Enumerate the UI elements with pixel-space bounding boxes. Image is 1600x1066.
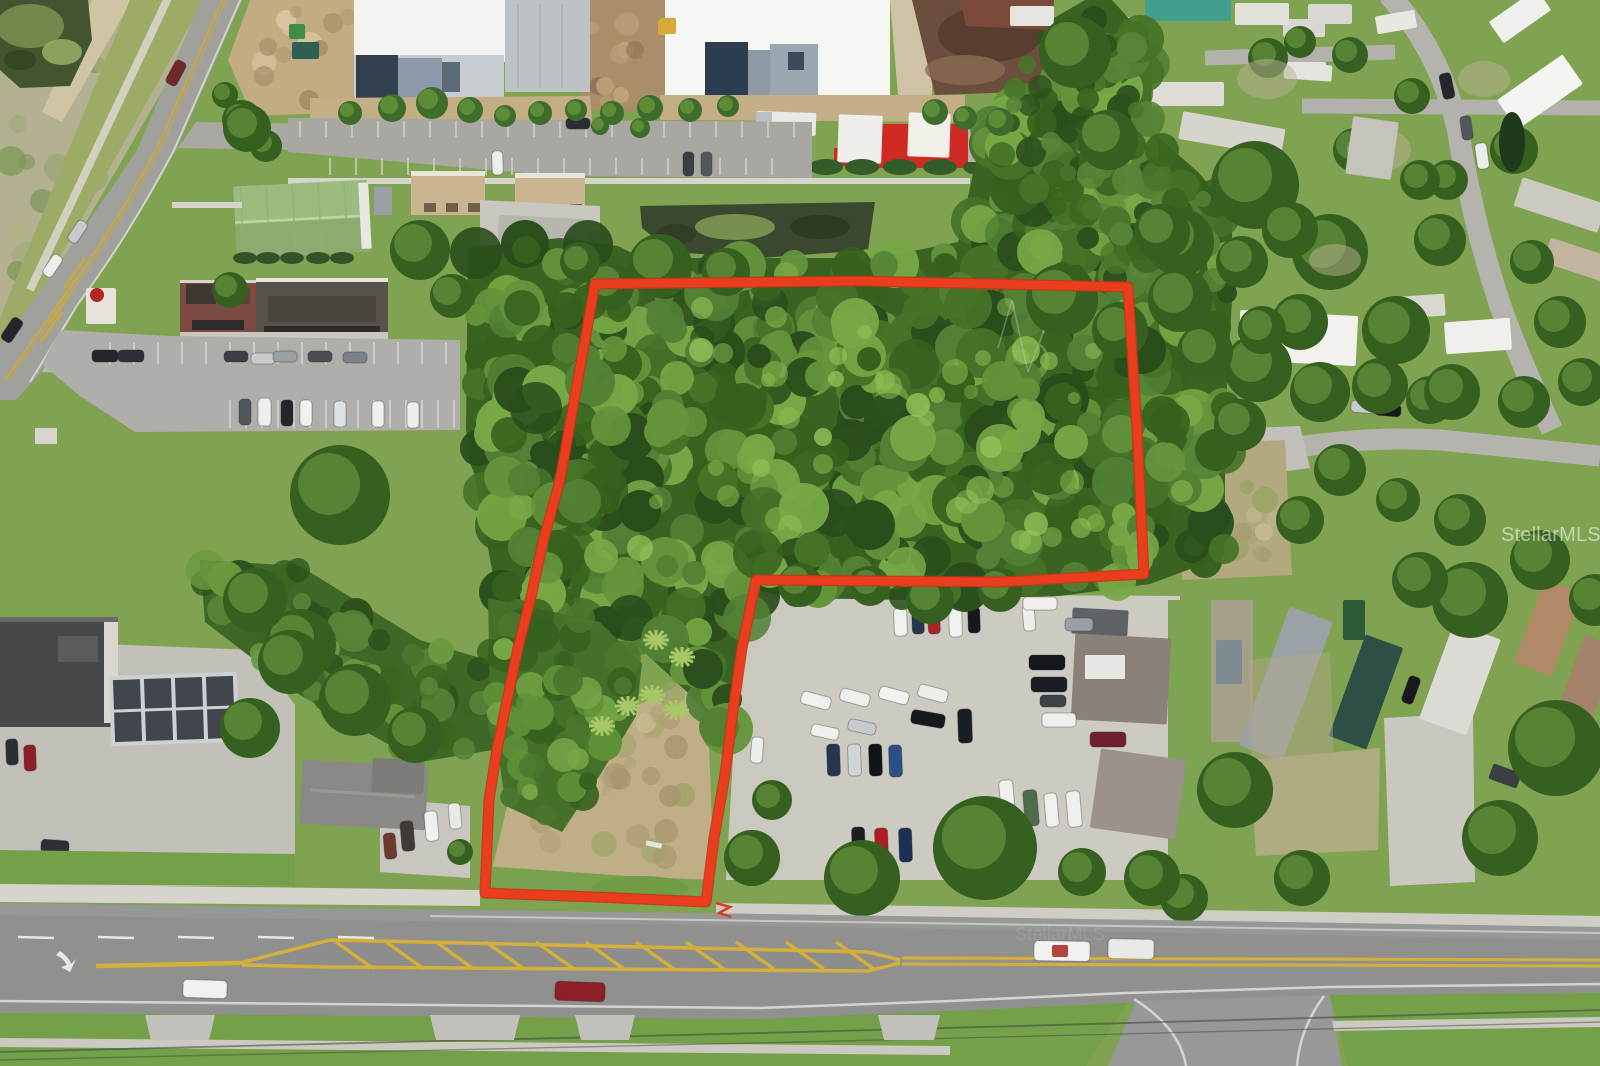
svg-text:StellarMLS: StellarMLS [1501, 524, 1600, 546]
svg-text:StellarMLS: StellarMLS [1015, 924, 1105, 944]
